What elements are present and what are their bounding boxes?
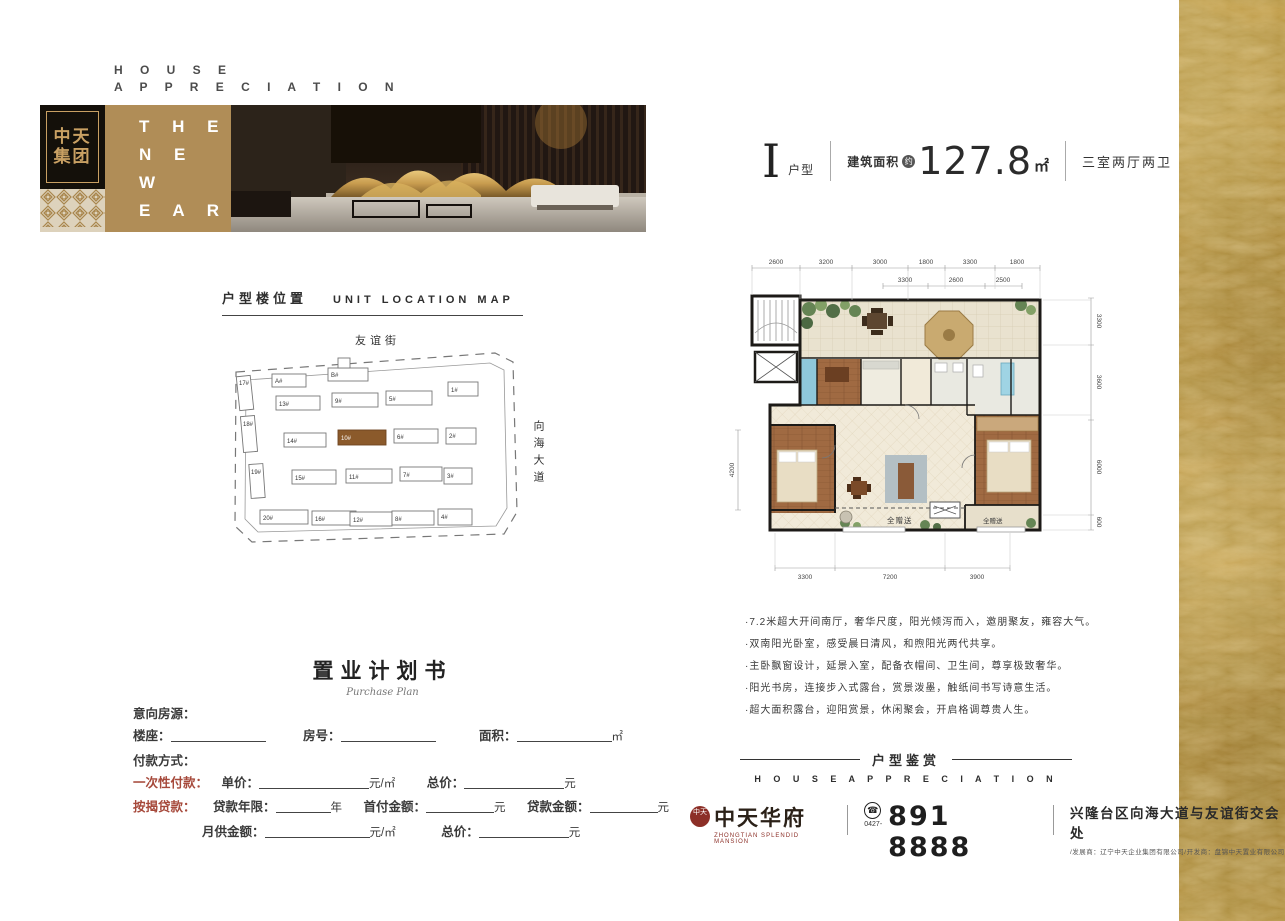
svg-text:3300: 3300 [898, 277, 913, 284]
brand-subtitle: ZHONGTIAN SPLENDID MANSION [714, 833, 831, 845]
svg-text:11#: 11# [349, 475, 359, 481]
svg-text:1800: 1800 [1010, 259, 1025, 266]
svg-text:9#: 9# [335, 399, 342, 405]
total-label: 总价： [427, 776, 465, 790]
loan-years-field [276, 800, 331, 813]
year-unit: 年 [331, 802, 343, 814]
mortgage-row: 按揭贷款： 贷款年限：年 首付金额：元 贷款金额：元 [133, 796, 669, 815]
onetime-row: 一次性付款： 单价：元/㎡ 总价：元 [133, 772, 576, 791]
loan-amount-field [590, 800, 658, 813]
svg-text:17#: 17# [239, 381, 250, 387]
form-subtitle: Purchase Plan [130, 687, 635, 698]
feature-item: ·阳光书房，连接步入式露台，赏景泼墨，触纸间书写诗意生活。 [745, 678, 1095, 700]
brand-banner: 中天集团 T H E N E W E A R [40, 105, 646, 232]
downpay-label: 首付金额： [364, 800, 427, 814]
appreciation-divider: 户型鉴赏 H O U S E A P P R E C I A T I O N [740, 750, 1072, 784]
rooms-label: 三室两厅两卫 [1082, 152, 1172, 171]
phone-number: 891 8888 [888, 801, 1037, 863]
map-building: 1# [448, 382, 478, 396]
map-building: 4# [438, 509, 472, 525]
map-building: 5# [386, 391, 432, 405]
group-logo-frame: 中天集团 [46, 111, 99, 183]
svg-text:19#: 19# [251, 470, 262, 476]
feature-item: ·主卧飘窗设计，延景入室，配备衣帽间、卫生间，尊享极致奢华。 [745, 656, 1095, 678]
header-line1: H O U S E [114, 62, 401, 79]
total2-field [479, 825, 569, 838]
divider [1065, 141, 1066, 181]
svg-text:2#: 2# [449, 434, 456, 440]
payment-row: 付款方式： [133, 750, 196, 769]
map-building: B# [328, 358, 368, 381]
unit-type-label: 户型 [788, 161, 814, 178]
svg-text:13#: 13# [279, 402, 290, 408]
svg-text:3300: 3300 [963, 259, 978, 266]
svg-text:3300: 3300 [798, 574, 813, 581]
address-block: 兴隆台区向海大道与友谊街交会处 /发展商：辽宁中天企业集团有限公司/开发商：盘锦… [1070, 802, 1285, 856]
svg-text:3600: 3600 [1095, 375, 1102, 390]
yuan: 元 [658, 802, 670, 814]
developers: /发展商：辽宁中天企业集团有限公司/开发商：盘锦中天置业有限公司 [1070, 846, 1285, 856]
area-label: 建筑面积 [847, 153, 899, 170]
divider [830, 141, 831, 181]
map-building: 3# [444, 468, 472, 484]
map-building: 12# [350, 512, 392, 526]
map-title-cn: 户型楼位置 [222, 288, 307, 307]
svg-text:12#: 12# [353, 518, 364, 524]
map-building: 19# [249, 464, 265, 499]
svg-text:14#: 14# [287, 439, 298, 445]
per-unit: 元/㎡ [369, 778, 395, 790]
divider-line [740, 759, 860, 760]
map-building: 8# [392, 511, 434, 525]
area-field [517, 729, 612, 742]
svg-text:2500: 2500 [996, 277, 1011, 284]
map-building: 11# [346, 469, 392, 483]
svg-text:6000: 6000 [1095, 460, 1102, 475]
street-right-label: 向海大道 [532, 419, 545, 488]
divider [847, 805, 848, 835]
brand-name: 中天华府 [714, 802, 831, 832]
map-building: 7# [400, 467, 442, 481]
building-field [171, 729, 266, 742]
svg-text:A#: A# [275, 379, 283, 385]
gift-label-center: 全赠送 [887, 515, 913, 525]
svg-text:6#: 6# [397, 435, 404, 441]
svg-text:18#: 18# [243, 422, 254, 428]
svg-text:3000: 3000 [873, 259, 888, 266]
yuan: 元 [494, 802, 506, 814]
intent-label: 意向房源： [133, 707, 196, 721]
svg-text:3300: 3300 [1095, 314, 1102, 329]
loan-years-label: 贷款年限： [213, 800, 276, 814]
area-unit: ㎡ [1034, 155, 1049, 176]
map-building: 6# [394, 429, 438, 443]
approx-badge: 约 [902, 155, 915, 168]
svg-text:3#: 3# [447, 474, 454, 480]
svg-text:600: 600 [1095, 517, 1102, 528]
brand-block: 中天华府 ZHONGTIAN SPLENDID MANSION [714, 802, 831, 845]
svg-text:4200: 4200 [729, 462, 736, 477]
map-building-highlighted: 10# [338, 430, 386, 445]
svg-text:B#: B# [331, 373, 339, 379]
svg-text:8#: 8# [395, 517, 402, 523]
total-field [464, 776, 564, 789]
header-line2: A P P R E C I A T I O N [114, 79, 401, 96]
area-value: 127.8 [918, 139, 1032, 183]
divider-line [952, 759, 1072, 760]
gold-texture-strip [1179, 0, 1285, 921]
map-building: 2# [446, 428, 476, 444]
address: 兴隆台区向海大道与友谊街交会处 [1070, 802, 1285, 842]
map-building: 13# [276, 396, 320, 410]
feature-item: ·双南阳光卧室，感受晨日清风，和煦阳光两代共享。 [745, 634, 1095, 656]
divider [1053, 805, 1054, 835]
svg-text:20#: 20# [263, 516, 274, 522]
unit-price-label: 单价： [222, 776, 260, 790]
svg-text:2600: 2600 [769, 259, 784, 266]
area-label: 面积： [479, 729, 517, 743]
group-logo: 中天集团 [40, 105, 105, 232]
onetime-label: 一次性付款： [133, 776, 208, 790]
map-building: 17# [236, 375, 253, 410]
area-unit: ㎡ [612, 731, 624, 743]
mortgage-label: 按揭贷款： [133, 800, 196, 814]
loan-amount-label: 贷款金额： [527, 800, 590, 814]
location-map-title: 户型楼位置 UNIT LOCATION MAP [222, 288, 523, 316]
group-logo-text: 中天集团 [54, 127, 92, 167]
unit-headline: I 户型 建筑面积 约 127.8 ㎡ 三室两厅两卫 [762, 138, 1172, 184]
yuan: 元 [564, 778, 576, 790]
svg-text:16#: 16# [315, 517, 326, 523]
map-building: 18# [240, 415, 257, 452]
phone-icon: ☎ [864, 802, 881, 819]
stairwell [752, 296, 800, 382]
svg-text:4#: 4# [441, 515, 448, 521]
group-logo-box: 中天集团 [40, 105, 105, 189]
footer-bar: 中天 中天华府 ZHONGTIAN SPLENDID MANSION ☎ 042… [690, 802, 1285, 863]
brand-seal-icon: 中天 [690, 806, 710, 827]
svg-text:7#: 7# [403, 473, 410, 479]
total-label: 总价： [441, 825, 479, 839]
form-title: 置业计划书 [130, 655, 635, 685]
svg-text:1#: 1# [451, 388, 458, 394]
site-map: 友谊街 向海大道 17# A# B# 13# 9# 5# 1# 18# 14# … [220, 330, 550, 585]
monthly-row: 月供金额：元/㎡ 总价：元 [202, 821, 580, 840]
room-field [341, 729, 436, 742]
room-label: 房号： [303, 729, 341, 743]
unit-price-field [259, 776, 369, 789]
map-building: 9# [332, 393, 378, 407]
payment-label: 付款方式： [133, 754, 196, 768]
feature-list: ·7.2米超大开间南厅，奢华尺度，阳光倾泻而入，邀朋聚友，雍容大气。 ·双南阳光… [745, 612, 1095, 722]
unit-letter: I [762, 138, 780, 184]
house-appreciation-header: H O U S E A P P R E C I A T I O N [114, 62, 401, 96]
svg-text:3200: 3200 [819, 259, 834, 266]
svg-text:2600: 2600 [949, 277, 964, 284]
feature-item: ·超大面积露台，迎阳赏景，休闲聚会，开启格调尊贵人生。 [745, 700, 1095, 722]
svg-text:15#: 15# [295, 476, 306, 482]
phone-block: ☎ 0427- 891 8888 [864, 802, 1037, 863]
map-title-en: UNIT LOCATION MAP [333, 294, 514, 306]
floor-plan: 全赠送 全赠送 2600 3200 3000 1800 3300 1800 33… [725, 255, 1110, 600]
map-building: 20# [260, 510, 308, 524]
svg-text:5#: 5# [389, 397, 396, 403]
gift-label-balcony: 全赠送 [983, 516, 1003, 525]
svg-text:7200: 7200 [883, 574, 898, 581]
appreciation-cn: 户型鉴赏 [872, 750, 940, 769]
building-label: 楼座： [133, 729, 171, 743]
downpay-field [426, 800, 494, 813]
yuan: 元 [569, 827, 581, 839]
phone-area-code: 0427- [864, 821, 882, 828]
unit-info-row: 楼座： 房号： 面积：㎡ [133, 725, 623, 744]
gold-noise-art [1179, 0, 1285, 921]
svg-text:10#: 10# [341, 436, 352, 442]
map-building: 16# [312, 511, 356, 525]
tagline-block: T H E N E W E A R [105, 105, 231, 232]
per-unit: 元/㎡ [370, 827, 396, 839]
intent-row: 意向房源： [133, 703, 196, 722]
monthly-field [265, 825, 370, 838]
lattice-pattern [40, 189, 105, 232]
street-top-label: 友谊街 [355, 333, 400, 347]
interior-photo [231, 105, 646, 232]
map-building: 14# [284, 433, 326, 447]
svg-text:1800: 1800 [919, 259, 934, 266]
monthly-label: 月供金额： [202, 825, 265, 839]
map-building: 15# [292, 470, 336, 484]
brochure-page: H O U S E A P P R E C I A T I O N 中天集团 [0, 0, 1285, 921]
purchase-plan-form: 置业计划书 Purchase Plan 意向房源： 楼座： 房号： 面积：㎡ 付… [130, 655, 635, 698]
tagline-line1: T H E [139, 113, 231, 141]
tagline-line3: E A R [139, 197, 231, 225]
map-buildings: 17# A# B# 13# 9# 5# 1# 18# 14# 10# 6# 2#… [236, 358, 478, 526]
svg-text:3900: 3900 [970, 574, 985, 581]
map-building: A# [272, 374, 306, 387]
tagline-line2: N E W [139, 141, 231, 197]
appreciation-en: H O U S E A P P R E C I A T I O N [740, 774, 1072, 784]
feature-item: ·7.2米超大开间南厅，奢华尺度，阳光倾泻而入，邀朋聚友，雍容大气。 [745, 612, 1095, 634]
